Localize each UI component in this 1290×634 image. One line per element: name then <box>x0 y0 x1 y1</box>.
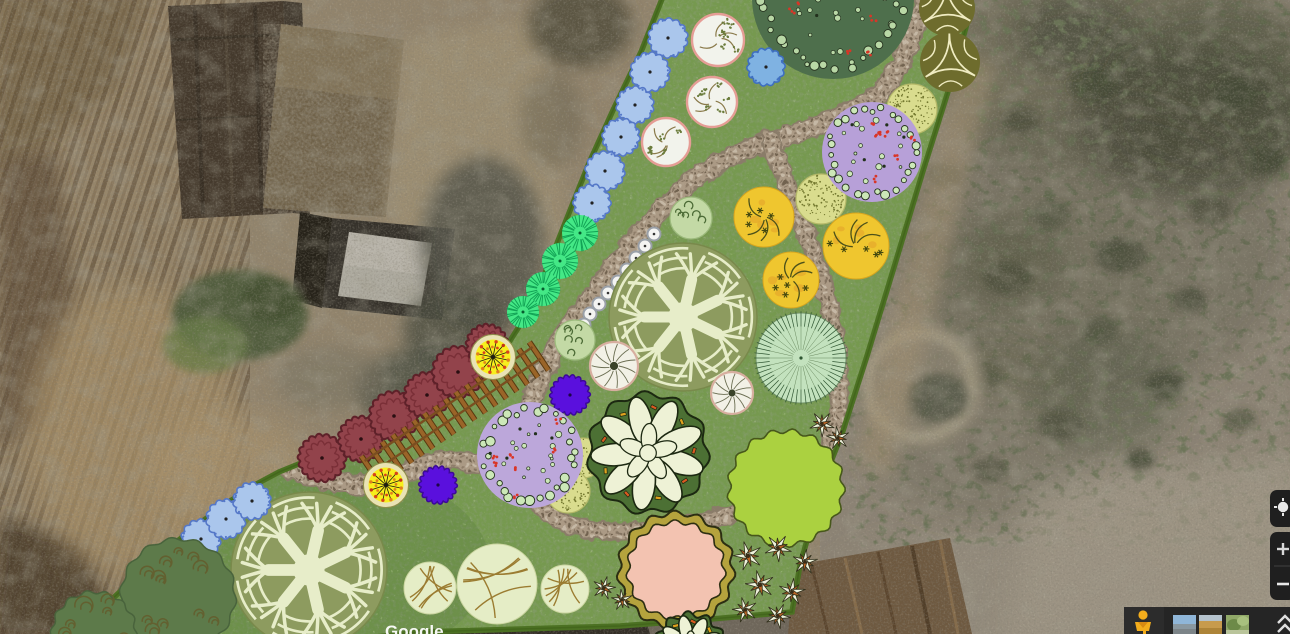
svg-text:Google: Google <box>385 622 444 634</box>
